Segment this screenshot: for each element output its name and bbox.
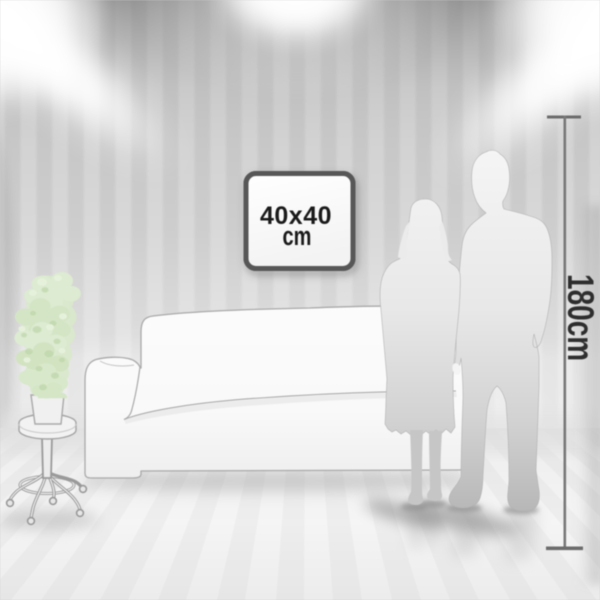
svg-text:180cm: 180cm	[560, 274, 600, 361]
svg-text:cm: cm	[283, 221, 312, 252]
